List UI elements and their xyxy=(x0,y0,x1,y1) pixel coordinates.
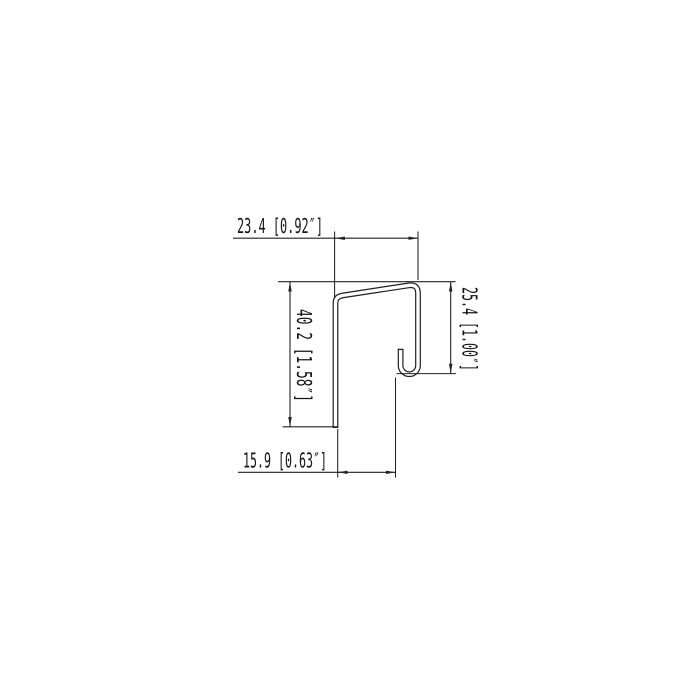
dimension-left-height: 40.2 [1.58″] xyxy=(278,282,456,427)
profile-outline xyxy=(333,285,418,427)
dimension-label-top: 23.4 [0.92″] xyxy=(237,214,323,238)
dimension-right-height: 25.4 [1.00″] xyxy=(397,282,482,374)
profile-drawing-canvas: 23.4 [0.92″] 40.2 [1.58″] 25.4 [1.00″] 1… xyxy=(0,0,700,700)
dimension-top-width: 23.4 [0.92″] xyxy=(233,214,418,298)
drawing-area: 23.4 [0.92″] 40.2 [1.58″] 25.4 [1.00″] 1… xyxy=(0,0,700,700)
dimension-label-right-height: 25.4 [1.00″] xyxy=(458,287,482,371)
profile-outer-surface xyxy=(336,285,419,427)
dimension-label-bottom: 15.9 [0.63″] xyxy=(243,449,327,473)
dimension-label-left-height: 40.2 [1.58″] xyxy=(292,309,316,402)
profile-inner-surface xyxy=(336,285,419,427)
